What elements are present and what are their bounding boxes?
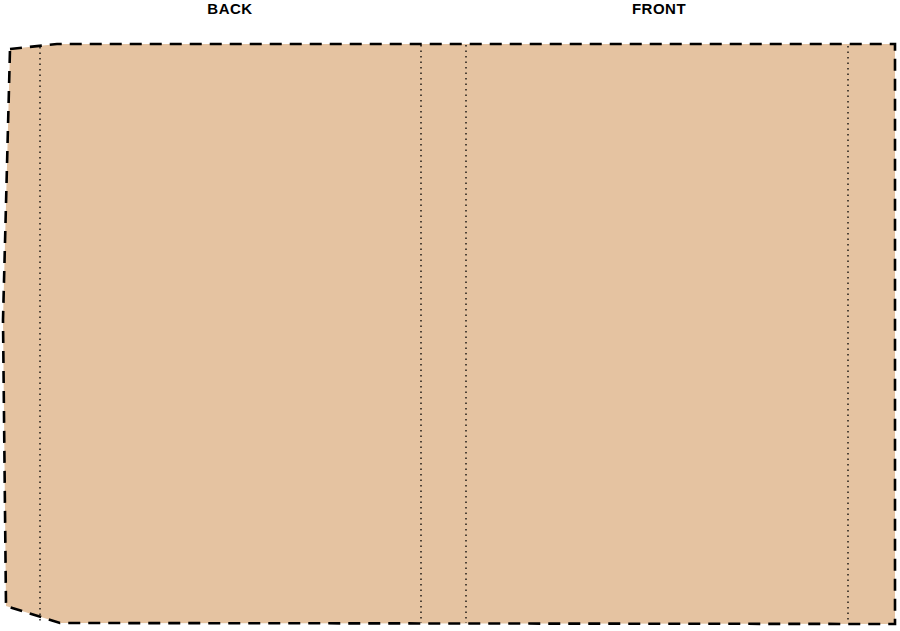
cover-panel-shape <box>3 44 895 624</box>
cover-template-diagram: BACK FRONT <box>0 0 900 631</box>
cover-template-drawing <box>0 0 900 631</box>
